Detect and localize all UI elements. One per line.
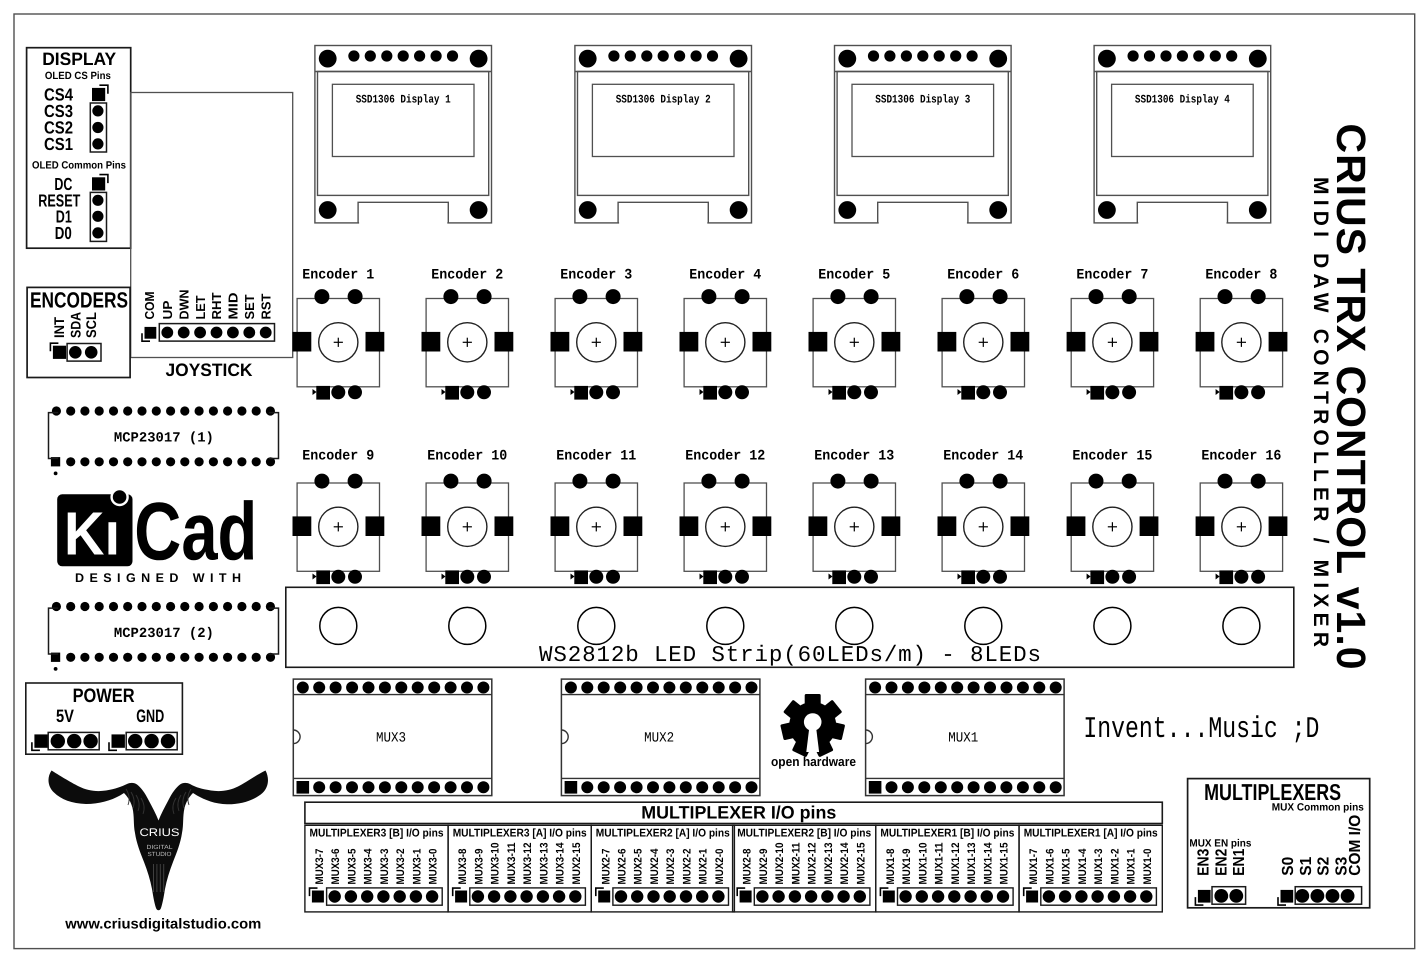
svg-text:MULTIPLEXER3 [A] I/O pins: MULTIPLEXER3 [A] I/O pins <box>453 828 587 840</box>
svg-text:Encoder 9: Encoder 9 <box>302 449 374 465</box>
svg-text:EN3: EN3 <box>1195 849 1212 876</box>
svg-text:MULTIPLEXER1 [A] I/O pins: MULTIPLEXER1 [A] I/O pins <box>1024 828 1158 840</box>
svg-text:MUX1-9: MUX1-9 <box>901 849 913 885</box>
svg-text:ENCODERS: ENCODERS <box>30 288 128 313</box>
svg-text:SSD1306 Display 2: SSD1306 Display 2 <box>616 93 711 106</box>
svg-text:Encoder 11: Encoder 11 <box>556 449 636 465</box>
svg-text:MUX2-15: MUX2-15 <box>571 843 583 885</box>
svg-text:UP: UP <box>160 300 175 319</box>
svg-text:MUX2: MUX2 <box>644 731 674 747</box>
svg-text:SCL: SCL <box>83 312 99 338</box>
svg-text:MUX1-11: MUX1-11 <box>934 843 946 885</box>
svg-text:MUX1-3: MUX1-3 <box>1093 849 1105 885</box>
svg-text:www.criusdigitalstudio.com: www.criusdigitalstudio.com <box>64 917 261 933</box>
svg-text:SSD1306 Display 3: SSD1306 Display 3 <box>875 93 970 106</box>
svg-text:MUX3-14: MUX3-14 <box>555 842 567 885</box>
svg-text:S0: S0 <box>1280 857 1297 876</box>
svg-text:MUX3-0: MUX3-0 <box>428 849 440 885</box>
svg-text:MUX2-4: MUX2-4 <box>649 848 661 885</box>
svg-text:OLED CS Pins: OLED CS Pins <box>45 70 111 82</box>
svg-text:LET: LET <box>193 295 208 319</box>
svg-text:MULTIPLEXER I/O pins: MULTIPLEXER I/O pins <box>641 803 836 823</box>
svg-text:Encoder 5: Encoder 5 <box>818 268 890 284</box>
svg-text:SDA: SDA <box>67 312 83 338</box>
svg-text:Kı: Kı <box>64 500 120 568</box>
svg-text:SSD1306 Display 1: SSD1306 Display 1 <box>356 93 451 106</box>
svg-text:DWN: DWN <box>177 290 192 320</box>
svg-text:CRIUS: CRIUS <box>140 827 180 839</box>
svg-text:Encoder 13: Encoder 13 <box>814 449 894 465</box>
svg-text:POWER: POWER <box>73 685 135 707</box>
svg-text:Encoder 1: Encoder 1 <box>302 268 374 284</box>
svg-text:MUX3: MUX3 <box>376 731 406 747</box>
svg-text:MUX1-12: MUX1-12 <box>950 843 962 885</box>
svg-text:MUX3-10: MUX3-10 <box>490 843 502 885</box>
svg-text:MUX1-7: MUX1-7 <box>1028 849 1040 885</box>
svg-text:Invent...Music ;D: Invent...Music ;D <box>1083 713 1319 747</box>
svg-text:Encoder 2: Encoder 2 <box>431 268 503 284</box>
svg-text:RHT: RHT <box>209 292 224 319</box>
svg-text:open hardware: open hardware <box>771 754 856 769</box>
svg-text:MUX3-13: MUX3-13 <box>538 843 550 885</box>
svg-text:MUX1-0: MUX1-0 <box>1142 849 1154 885</box>
svg-text:COM: COM <box>142 292 157 320</box>
svg-text:S1: S1 <box>1298 857 1315 876</box>
svg-text:MUX3-1: MUX3-1 <box>411 849 423 885</box>
svg-text:SET: SET <box>242 294 257 319</box>
svg-text:MUX3-3: MUX3-3 <box>379 849 391 885</box>
svg-text:MUX2-11: MUX2-11 <box>790 843 802 885</box>
svg-text:MULTIPLEXER2 [B] I/O pins: MULTIPLEXER2 [B] I/O pins <box>737 828 871 840</box>
svg-text:MUX2-7: MUX2-7 <box>600 849 612 885</box>
svg-text:MUX3-2: MUX3-2 <box>395 849 407 885</box>
svg-text:MIDI DAW CONTROLLER / MIXER: MIDI DAW CONTROLLER / MIXER <box>1309 177 1332 647</box>
svg-text:S2: S2 <box>1316 857 1333 876</box>
svg-text:MUX3-6: MUX3-6 <box>330 849 342 885</box>
svg-text:COM I/O: COM I/O <box>1347 815 1364 876</box>
svg-text:MUX2-1: MUX2-1 <box>698 849 710 885</box>
svg-text:MUX2-0: MUX2-0 <box>714 849 726 885</box>
svg-text:MULTIPLEXER1 [B] I/O pins: MULTIPLEXER1 [B] I/O pins <box>880 828 1014 840</box>
svg-text:CRIUS TRX CONTROL v1.0: CRIUS TRX CONTROL v1.0 <box>1328 124 1374 670</box>
svg-text:SSD1306 Display 4: SSD1306 Display 4 <box>1135 93 1230 106</box>
svg-text:MUX3-9: MUX3-9 <box>473 849 485 885</box>
svg-text:MCP23017 (2): MCP23017 (2) <box>114 626 214 642</box>
svg-text:MUX2-8: MUX2-8 <box>742 849 754 885</box>
svg-text:MUX1-2: MUX1-2 <box>1109 849 1121 885</box>
svg-text:MUX3-12: MUX3-12 <box>522 843 534 885</box>
svg-text:WS2812b LED Strip(60LEDs/m) -: WS2812b LED Strip(60LEDs/m) - 8LEDs <box>539 642 1041 668</box>
svg-text:MCP23017 (1): MCP23017 (1) <box>114 431 214 447</box>
svg-text:MUX1-10: MUX1-10 <box>917 843 929 885</box>
svg-text:Encoder 3: Encoder 3 <box>560 268 632 284</box>
svg-text:EN1: EN1 <box>1231 849 1248 876</box>
svg-text:Encoder 6: Encoder 6 <box>947 268 1019 284</box>
svg-text:MUX2-5: MUX2-5 <box>633 849 645 885</box>
svg-text:MULTIPLEXER3 [B] I/O pins: MULTIPLEXER3 [B] I/O pins <box>310 828 444 840</box>
svg-text:STUDIO: STUDIO <box>148 851 172 858</box>
svg-text:D0: D0 <box>55 223 72 243</box>
svg-text:5V: 5V <box>56 706 74 726</box>
svg-text:MUX3-5: MUX3-5 <box>346 849 358 885</box>
svg-text:MUX1-13: MUX1-13 <box>966 843 978 885</box>
svg-text:CS1: CS1 <box>44 134 73 154</box>
svg-text:MUX2-12: MUX2-12 <box>807 843 819 885</box>
svg-text:MUX1-14: MUX1-14 <box>982 842 994 885</box>
svg-text:Encoder 14: Encoder 14 <box>943 449 1023 465</box>
svg-text:Encoder 15: Encoder 15 <box>1072 449 1152 465</box>
svg-text:MUX2-15: MUX2-15 <box>855 843 867 885</box>
svg-text:MUX EN pins: MUX EN pins <box>1189 837 1251 849</box>
svg-text:MUX2-6: MUX2-6 <box>617 849 629 885</box>
svg-text:MUX2-3: MUX2-3 <box>665 849 677 885</box>
svg-text:Cad: Cad <box>134 487 257 578</box>
svg-text:DISPLAY: DISPLAY <box>42 49 116 69</box>
svg-text:MUX2-9: MUX2-9 <box>758 849 770 885</box>
svg-text:MID: MID <box>226 293 241 320</box>
svg-text:Encoder 7: Encoder 7 <box>1076 268 1148 284</box>
svg-text:Encoder 8: Encoder 8 <box>1205 268 1277 284</box>
svg-text:MUX Common pins: MUX Common pins <box>1272 802 1364 814</box>
svg-text:MUX1: MUX1 <box>948 731 978 747</box>
svg-text:JOYSTICK: JOYSTICK <box>166 360 253 380</box>
svg-text:GND: GND <box>136 706 164 726</box>
svg-text:MUX3-4: MUX3-4 <box>363 848 375 885</box>
svg-text:MUX1-8: MUX1-8 <box>885 849 897 885</box>
svg-text:Encoder 4: Encoder 4 <box>689 268 761 284</box>
svg-text:RST: RST <box>259 293 274 319</box>
svg-text:Encoder 10: Encoder 10 <box>427 449 507 465</box>
svg-text:DIGITAL: DIGITAL <box>147 844 174 851</box>
svg-text:MUX3-11: MUX3-11 <box>506 843 518 885</box>
svg-text:MUX2-2: MUX2-2 <box>682 849 694 885</box>
svg-text:MUX3-7: MUX3-7 <box>314 849 326 885</box>
svg-text:EN2: EN2 <box>1214 849 1231 876</box>
svg-text:MUX2-13: MUX2-13 <box>823 843 835 885</box>
svg-text:MUX1-6: MUX1-6 <box>1044 849 1056 885</box>
svg-text:MUX2-14: MUX2-14 <box>839 842 851 885</box>
svg-text:MUX1-15: MUX1-15 <box>999 843 1011 885</box>
svg-text:MUX1-1: MUX1-1 <box>1126 849 1138 885</box>
svg-text:Encoder 12: Encoder 12 <box>685 449 765 465</box>
svg-text:OLED Common Pins: OLED Common Pins <box>32 159 126 171</box>
svg-text:Encoder 16: Encoder 16 <box>1201 449 1281 465</box>
svg-text:MUX2-10: MUX2-10 <box>774 843 786 885</box>
svg-text:MUX1-4: MUX1-4 <box>1077 848 1089 885</box>
svg-text:INT: INT <box>51 317 67 338</box>
svg-text:MULTIPLEXER2 [A] I/O pins: MULTIPLEXER2 [A] I/O pins <box>596 828 730 840</box>
svg-text:MUX3-8: MUX3-8 <box>457 849 469 885</box>
svg-text:MUX1-5: MUX1-5 <box>1061 849 1073 885</box>
